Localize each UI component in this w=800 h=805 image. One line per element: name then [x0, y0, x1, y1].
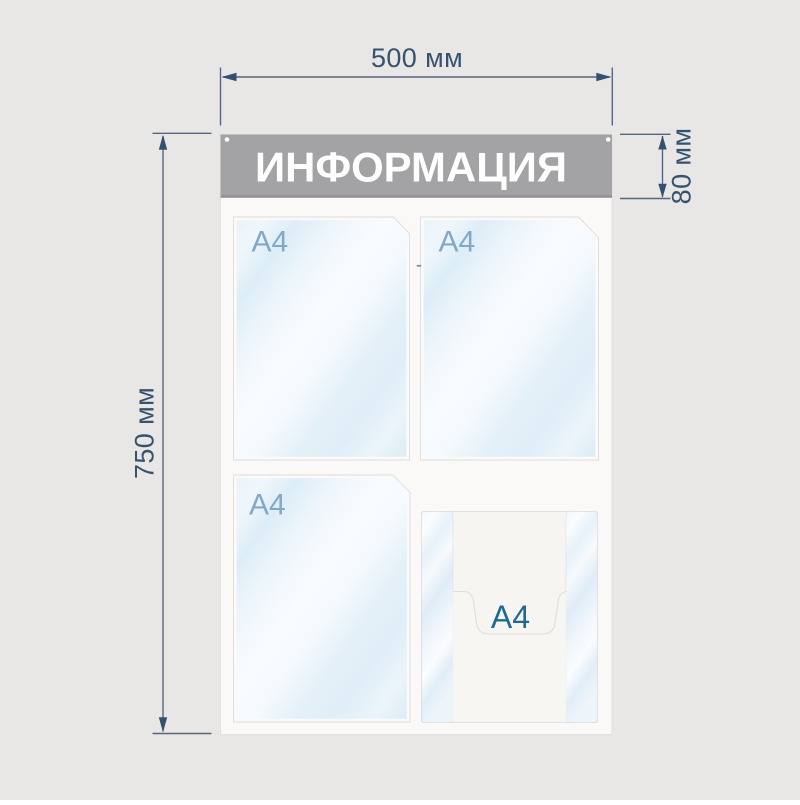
svg-text:ИНФОРМАЦИЯ: ИНФОРМАЦИЯ: [255, 144, 567, 191]
svg-text:750 мм: 750 мм: [130, 387, 160, 479]
svg-text:80 мм: 80 мм: [667, 128, 697, 205]
svg-text:A4: A4: [439, 226, 476, 259]
svg-text:500 мм: 500 мм: [371, 43, 463, 73]
svg-text:A4: A4: [249, 489, 286, 522]
svg-text:A4: A4: [252, 226, 289, 259]
svg-text:A4: A4: [491, 599, 530, 635]
